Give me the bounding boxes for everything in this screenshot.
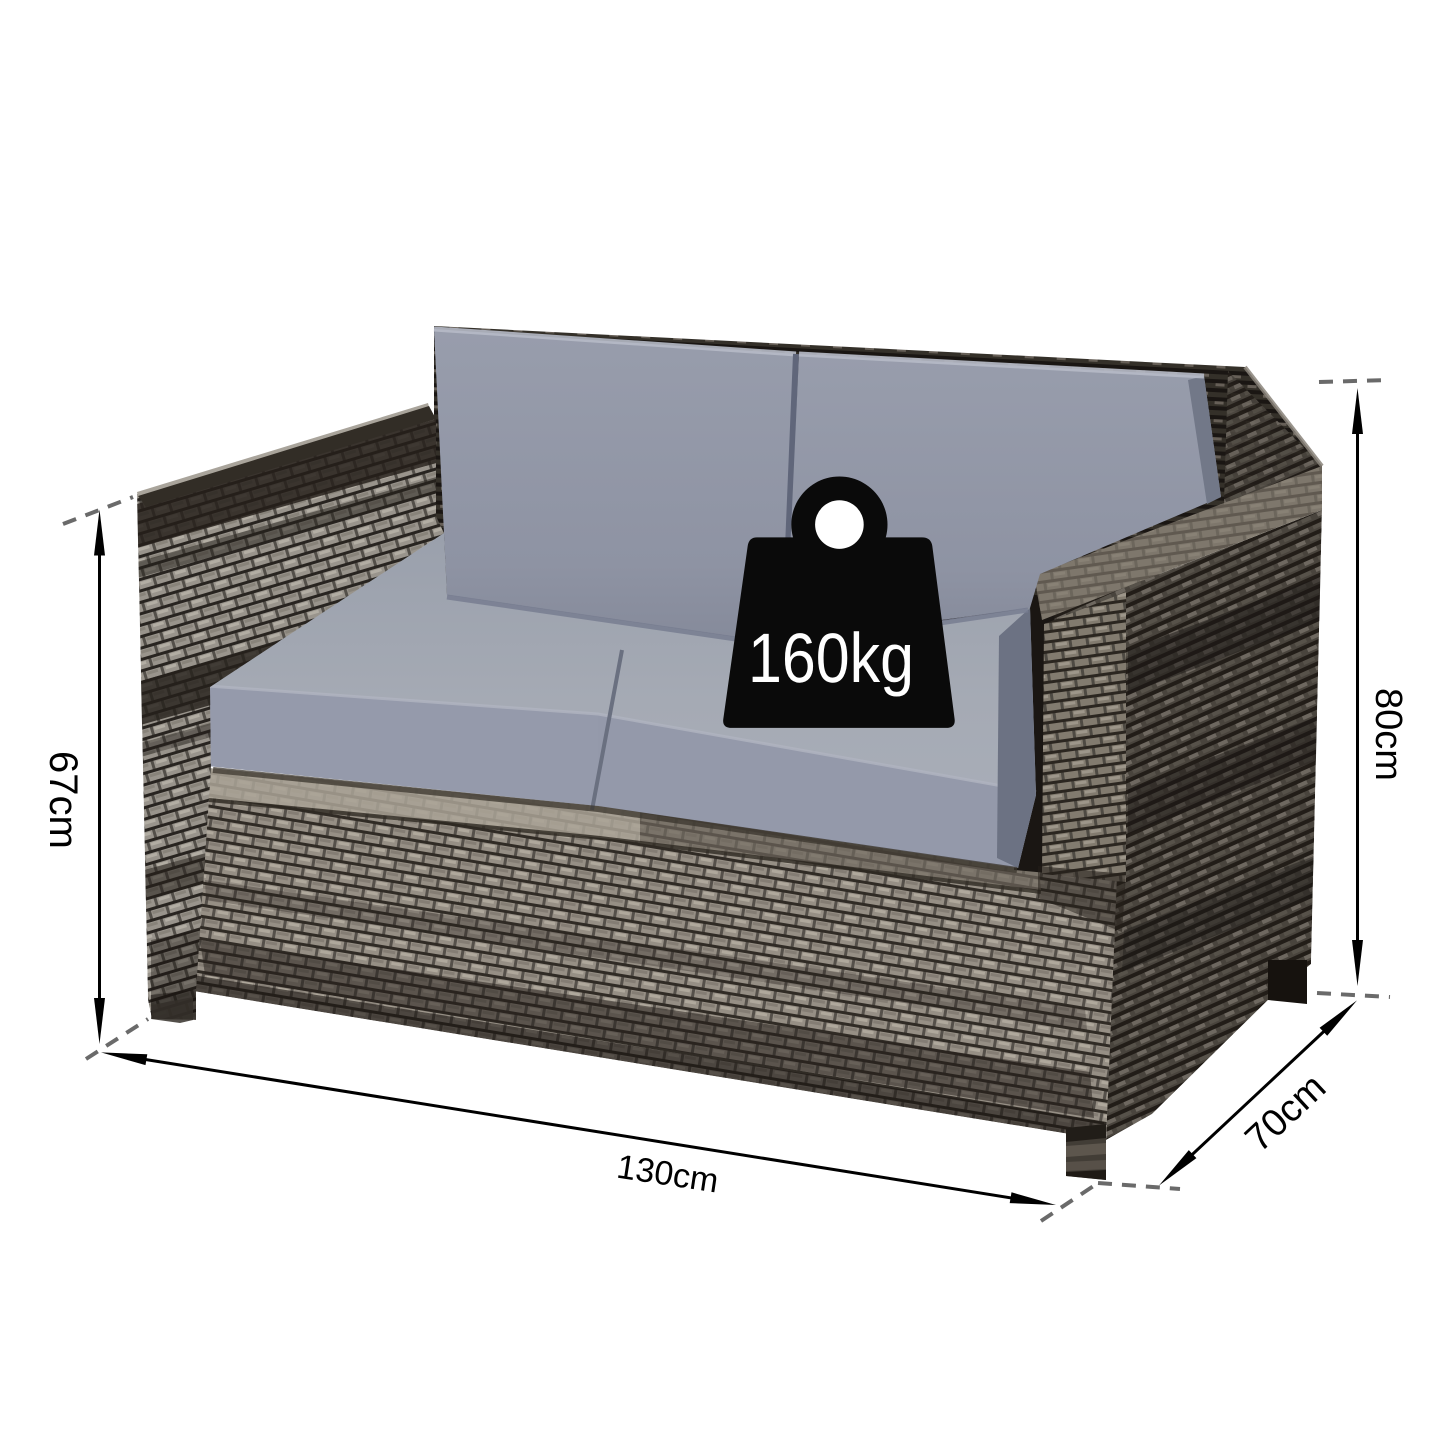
svg-text:80cm: 80cm xyxy=(1367,688,1409,781)
svg-text:67cm: 67cm xyxy=(41,751,85,849)
svg-text:160kg: 160kg xyxy=(748,619,914,697)
